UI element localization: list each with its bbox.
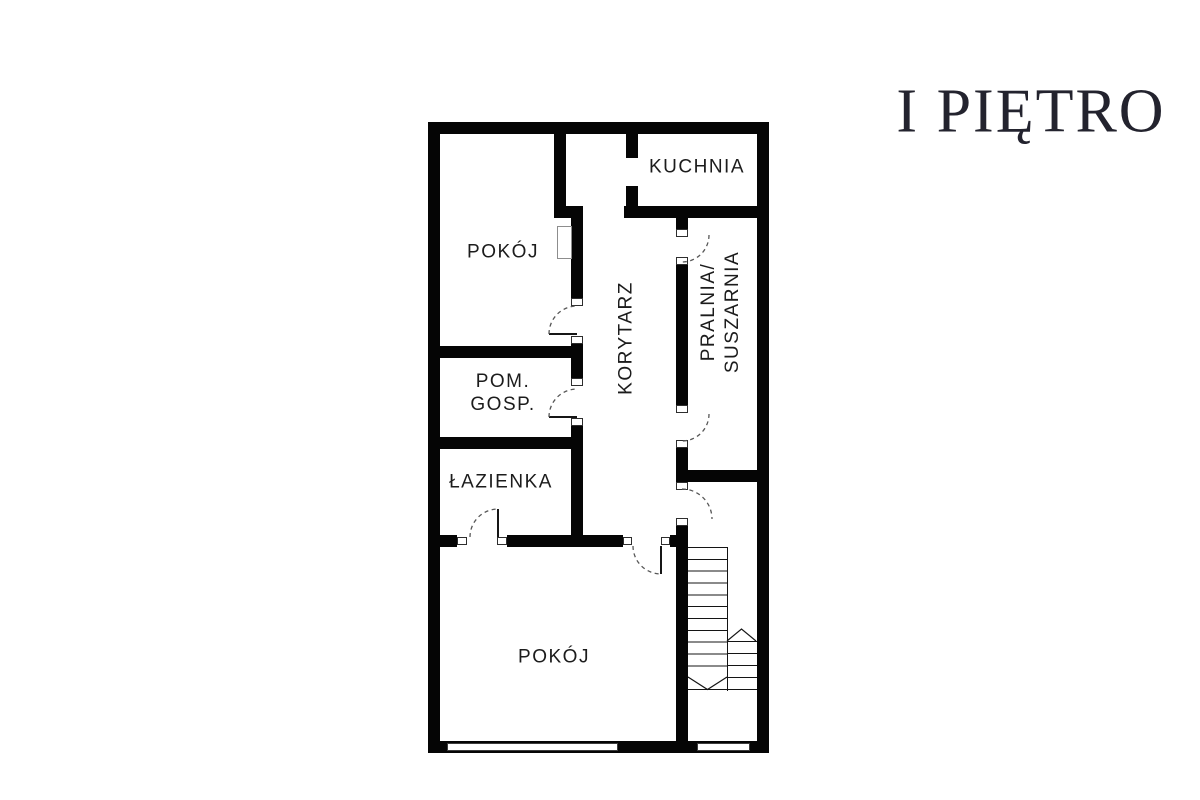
stairs-chevron-down — [688, 677, 727, 690]
door-arc — [682, 414, 709, 441]
door-arc — [549, 389, 577, 417]
open-door-leaf — [558, 227, 572, 259]
stairs-chevron-up — [727, 629, 756, 641]
room-label-lazienka: ŁAZIENKA — [449, 471, 553, 494]
door-arc — [633, 546, 661, 574]
room-label-line: SUSZARNIA — [721, 251, 745, 373]
room-label-pralnia-suszarnia: PRALNIA/ SUSZARNIA — [697, 251, 745, 373]
room-label-line: GOSP. — [470, 393, 535, 416]
room-label-korytarz: KORYTARZ — [615, 281, 638, 395]
floor-title: I PIĘTRO — [896, 77, 1165, 148]
room-label-pokoj-top: POKÓJ — [467, 241, 539, 264]
door-swing-overlay — [420, 110, 780, 760]
room-label-line: PRALNIA/ — [697, 251, 721, 373]
room-label-pom-gosp: POM. GOSP. — [470, 370, 535, 416]
room-label-line: POM. — [470, 370, 535, 393]
door-arc — [470, 509, 498, 537]
door-arc — [682, 489, 712, 519]
room-label-pokoj-bottom: POKÓJ — [518, 646, 590, 669]
floor-plan-page: I PIĘTRO — [0, 0, 1200, 800]
room-label-kuchnia: KUCHNIA — [649, 156, 745, 179]
door-arc — [549, 306, 577, 334]
